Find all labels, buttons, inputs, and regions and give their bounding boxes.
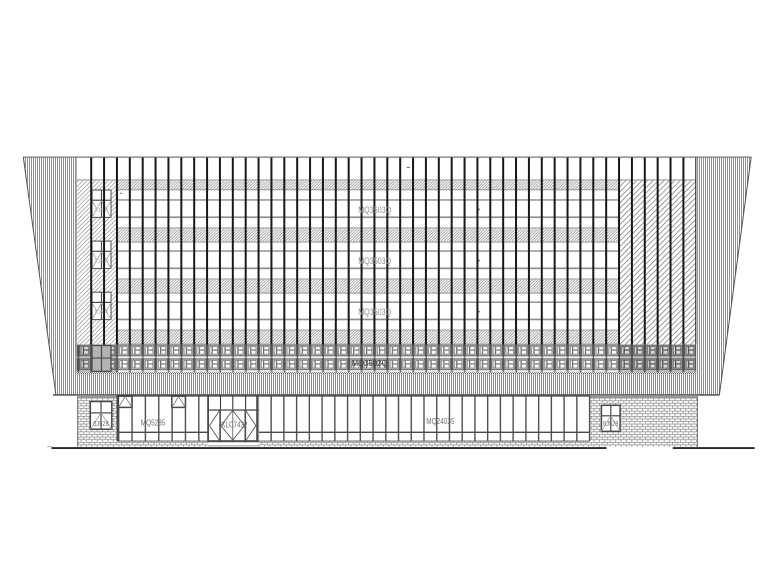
svg-text:K1524: K1524 bbox=[95, 310, 108, 316]
svg-text:KLC7432: KLC7432 bbox=[221, 420, 247, 430]
svg-text:MQ3503Q: MQ3503Q bbox=[358, 205, 391, 216]
svg-text:K1524: K1524 bbox=[95, 259, 108, 265]
svg-text:6J528: 6J528 bbox=[93, 421, 109, 428]
svg-text:K1524: K1524 bbox=[95, 208, 108, 214]
svg-text:MQ24035: MQ24035 bbox=[426, 416, 454, 426]
svg-text:MQ3502Q: MQ3502Q bbox=[352, 358, 388, 368]
svg-text:MQ3503Q: MQ3503Q bbox=[358, 307, 391, 318]
svg-text:MQ3503Q: MQ3503Q bbox=[358, 256, 391, 267]
svg-text:6J528: 6J528 bbox=[603, 421, 619, 428]
svg-text:MQ5285: MQ5285 bbox=[141, 418, 166, 428]
